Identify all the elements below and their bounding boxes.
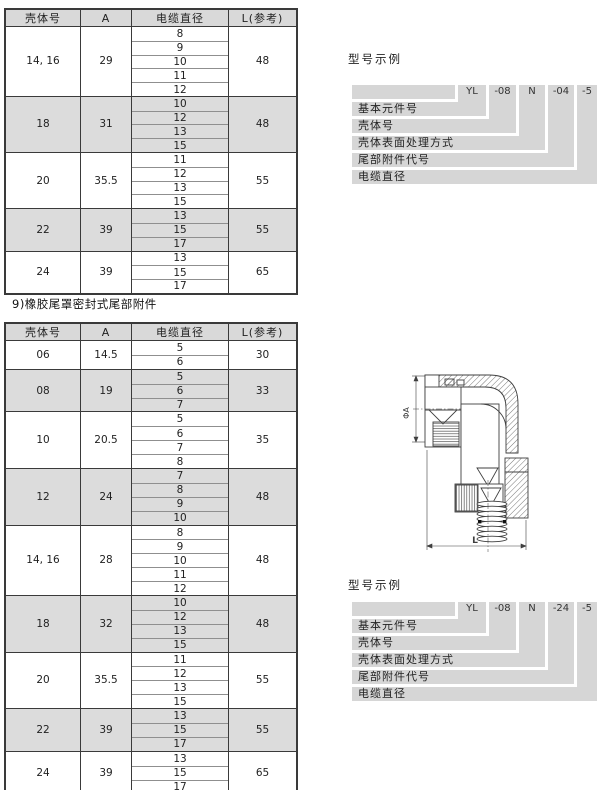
cell-cable-diameters: 11121315 (131, 153, 228, 208)
cell-diameter: 15 (132, 265, 228, 279)
cell-diameter: 12 (132, 666, 228, 680)
datasheet-page: 壳体号A电缆直径L(参考)14, 16298910111248183110121… (0, 0, 600, 790)
column-header: 电缆直径 (131, 324, 228, 340)
cell-diameter: 5 (132, 412, 228, 426)
cell-l-reference: 48 (228, 469, 296, 525)
model-code: -24 (548, 602, 574, 616)
connector-technical-drawing: ΦA L (393, 360, 541, 560)
cell-shell-number: 18 (6, 596, 80, 652)
label-band: 电缆直径 (352, 687, 597, 701)
cell-a-value: 39 (80, 209, 131, 250)
cell-diameter: 6 (132, 426, 228, 440)
cell-diameter: 8 (132, 483, 228, 497)
cell-cable-diameters: 5678 (131, 412, 228, 468)
cell-diameter: 13 (132, 181, 228, 195)
model-part-label: 基本元件号 (352, 619, 418, 633)
model-part-label: 壳体表面处理方式 (352, 653, 454, 667)
model-number-diagram-2: 基本元件号YL壳体号-08壳体表面处理方式N尾部附件代号-24电缆直径-5 (352, 602, 597, 702)
cell-l-reference: 65 (228, 252, 296, 293)
cell-diameter: 15 (132, 694, 228, 708)
model-code: -08 (489, 85, 516, 99)
cell-diameter: 11 (132, 653, 228, 667)
table-group-row: 18321012131548 (6, 595, 296, 652)
cell-diameter: 15 (132, 766, 228, 780)
cell-diameter: 7 (132, 469, 228, 483)
model-code: YL (458, 85, 486, 99)
cell-diameter: 15 (132, 194, 228, 208)
table-group-row: 18311012131548 (6, 96, 296, 152)
cell-shell-number: 24 (6, 752, 80, 790)
cell-diameter: 7 (132, 440, 228, 454)
cell-diameter: 12 (132, 82, 228, 96)
model-example-title-2: 型号示例 (348, 577, 402, 593)
thread-section (433, 422, 459, 446)
label-band: 壳体号 (352, 636, 516, 650)
cell-a-value: 35.5 (80, 153, 131, 208)
label-band: 壳体表面处理方式 (352, 136, 545, 150)
table-group-row: 223913151755 (6, 208, 296, 250)
cell-a-value: 14.5 (80, 341, 131, 369)
cell-l-reference: 55 (228, 709, 296, 751)
cell-diameter: 15 (132, 138, 228, 152)
cell-shell-number: 10 (6, 412, 80, 468)
column-header: 壳体号 (6, 10, 80, 26)
cell-diameter: 12 (132, 111, 228, 125)
cell-diameter: 10 (132, 55, 228, 69)
diagram-header-area (352, 602, 455, 616)
cell-a-value: 32 (80, 596, 131, 652)
label-band: 壳体号 (352, 119, 516, 133)
section-caption: 9)橡胶尾罩密封式尾部附件 (12, 296, 157, 312)
cell-diameter: 13 (132, 209, 228, 223)
cell-a-value: 29 (80, 27, 131, 96)
model-code: YL (458, 602, 486, 616)
cell-shell-number: 06 (6, 341, 80, 369)
table-header-row: 壳体号A电缆直径L(参考) (6, 10, 296, 26)
cell-cable-diameters: 10121315 (131, 596, 228, 652)
label-band: 尾部附件代号 (352, 670, 574, 684)
model-part-label: 尾部附件代号 (352, 153, 430, 167)
label-band: 基本元件号 (352, 102, 486, 116)
table-group-row: 12247891048 (6, 468, 296, 525)
cell-diameter: 6 (132, 355, 228, 369)
cell-cable-diameters: 131517 (131, 252, 228, 293)
cell-cable-diameters: 11121315 (131, 653, 228, 709)
cell-diameter: 5 (132, 370, 228, 384)
cell-cable-diameters: 56 (131, 341, 228, 369)
cell-diameter: 8 (132, 27, 228, 41)
table-group-row: 081956733 (6, 369, 296, 412)
cell-diameter: 12 (132, 610, 228, 624)
column-header: L(参考) (228, 10, 296, 26)
cell-l-reference: 30 (228, 341, 296, 369)
cell-l-reference: 48 (228, 27, 296, 96)
table-group-row: 243913151765 (6, 251, 296, 293)
cell-a-value: 35.5 (80, 653, 131, 709)
cell-diameter: 13 (132, 752, 228, 766)
cell-diameter: 9 (132, 41, 228, 55)
cell-diameter: 17 (132, 237, 228, 251)
cell-diameter: 13 (132, 252, 228, 266)
cell-diameter: 17 (132, 737, 228, 751)
table-group-row: 14, 16298910111248 (6, 26, 296, 96)
table-group-row: 243913151765 (6, 751, 296, 790)
cell-l-reference: 33 (228, 370, 296, 412)
spec-table-top: 壳体号A电缆直径L(参考)14, 16298910111248183110121… (4, 8, 298, 295)
model-part-label: 电缆直径 (352, 687, 406, 701)
model-part-label: 尾部附件代号 (352, 670, 430, 684)
cell-cable-diameters: 89101112 (131, 526, 228, 595)
cell-shell-number: 08 (6, 370, 80, 412)
cell-diameter: 15 (132, 638, 228, 652)
cell-diameter: 6 (132, 384, 228, 398)
spec-table-rubber-tail: 壳体号A电缆直径L(参考)0614.556300819567331020.556… (4, 322, 298, 790)
table-group-row: 1020.5567835 (6, 411, 296, 468)
table-group-row: 2035.51112131555 (6, 652, 296, 709)
column-header: A (80, 10, 131, 26)
cell-diameter: 10 (132, 596, 228, 610)
model-code: N (519, 85, 545, 99)
cell-shell-number: 14, 16 (6, 27, 80, 96)
cell-a-value: 31 (80, 97, 131, 152)
cell-a-value: 28 (80, 526, 131, 595)
model-code: -04 (548, 85, 574, 99)
cell-diameter: 11 (132, 153, 228, 167)
cell-diameter: 12 (132, 581, 228, 595)
cell-l-reference: 65 (228, 752, 296, 790)
cell-shell-number: 20 (6, 653, 80, 709)
cell-diameter: 7 (132, 398, 228, 412)
cell-cable-diameters: 131517 (131, 752, 228, 790)
cell-l-reference: 55 (228, 209, 296, 250)
model-example-title-1: 型号示例 (348, 51, 402, 67)
cell-cable-diameters: 131517 (131, 209, 228, 250)
diagram-header-area (352, 85, 455, 99)
column-header: 壳体号 (6, 324, 80, 340)
cell-cable-diameters: 78910 (131, 469, 228, 525)
table-group-row: 14, 16288910111248 (6, 525, 296, 595)
cell-shell-number: 18 (6, 97, 80, 152)
cell-diameter: 9 (132, 497, 228, 511)
cell-shell-number: 24 (6, 252, 80, 293)
cell-shell-number: 20 (6, 153, 80, 208)
cell-a-value: 20.5 (80, 412, 131, 468)
cell-cable-diameters: 567 (131, 370, 228, 412)
cell-diameter: 12 (132, 167, 228, 181)
flange-section (505, 472, 528, 518)
cell-l-reference: 55 (228, 153, 296, 208)
cell-l-reference: 55 (228, 653, 296, 709)
label-band: 基本元件号 (352, 619, 486, 633)
cell-l-reference: 48 (228, 596, 296, 652)
model-part-label: 电缆直径 (352, 170, 406, 184)
model-part-label: 壳体号 (352, 636, 394, 650)
model-number-diagram-1: 基本元件号YL壳体号-08壳体表面处理方式N尾部附件代号-04电缆直径-5 (352, 85, 597, 185)
cell-diameter: 13 (132, 709, 228, 723)
model-part-label: 壳体号 (352, 119, 394, 133)
cell-diameter: 17 (132, 780, 228, 790)
label-band: 尾部附件代号 (352, 153, 574, 167)
table-group-row: 0614.55630 (6, 340, 296, 369)
cell-a-value: 19 (80, 370, 131, 412)
label-band: 电缆直径 (352, 170, 597, 184)
model-code: -08 (489, 602, 516, 616)
cell-diameter: 13 (132, 124, 228, 138)
rubber-tail-spring (477, 501, 507, 542)
label-band: 壳体表面处理方式 (352, 653, 545, 667)
svg-text:ΦA: ΦA (402, 407, 411, 419)
cell-a-value: 24 (80, 469, 131, 525)
model-part-label: 基本元件号 (352, 102, 418, 116)
table-header-row: 壳体号A电缆直径L(参考) (6, 324, 296, 340)
cell-diameter: 17 (132, 279, 228, 293)
column-header: A (80, 324, 131, 340)
cell-diameter: 10 (132, 553, 228, 567)
cell-a-value: 39 (80, 252, 131, 293)
cell-diameter: 11 (132, 68, 228, 82)
model-part-label: 壳体表面处理方式 (352, 136, 454, 150)
cell-a-value: 39 (80, 709, 131, 751)
column-header: 电缆直径 (131, 10, 228, 26)
model-code: -5 (577, 602, 597, 616)
cell-diameter: 9 (132, 539, 228, 553)
cell-shell-number: 12 (6, 469, 80, 525)
cell-diameter: 15 (132, 723, 228, 737)
column-header: L(参考) (228, 324, 296, 340)
cell-diameter: 11 (132, 567, 228, 581)
cell-diameter: 13 (132, 624, 228, 638)
cell-diameter: 8 (132, 454, 228, 468)
cell-cable-diameters: 10121315 (131, 97, 228, 152)
cell-diameter: 15 (132, 223, 228, 237)
model-code: -5 (577, 85, 597, 99)
cell-l-reference: 48 (228, 97, 296, 152)
cell-shell-number: 22 (6, 209, 80, 250)
cell-cable-diameters: 89101112 (131, 27, 228, 96)
cell-a-value: 39 (80, 752, 131, 790)
cell-cable-diameters: 131517 (131, 709, 228, 751)
table-group-row: 223913151755 (6, 708, 296, 751)
cell-shell-number: 22 (6, 709, 80, 751)
cell-diameter: 8 (132, 526, 228, 540)
svg-text:L: L (472, 536, 478, 546)
cell-diameter: 13 (132, 680, 228, 694)
model-code: N (519, 602, 545, 616)
cell-shell-number: 14, 16 (6, 526, 80, 595)
cell-diameter: 5 (132, 341, 228, 355)
cell-diameter: 10 (132, 511, 228, 525)
cell-l-reference: 48 (228, 526, 296, 595)
cell-diameter: 10 (132, 97, 228, 111)
table-group-row: 2035.51112131555 (6, 152, 296, 208)
cell-l-reference: 35 (228, 412, 296, 468)
